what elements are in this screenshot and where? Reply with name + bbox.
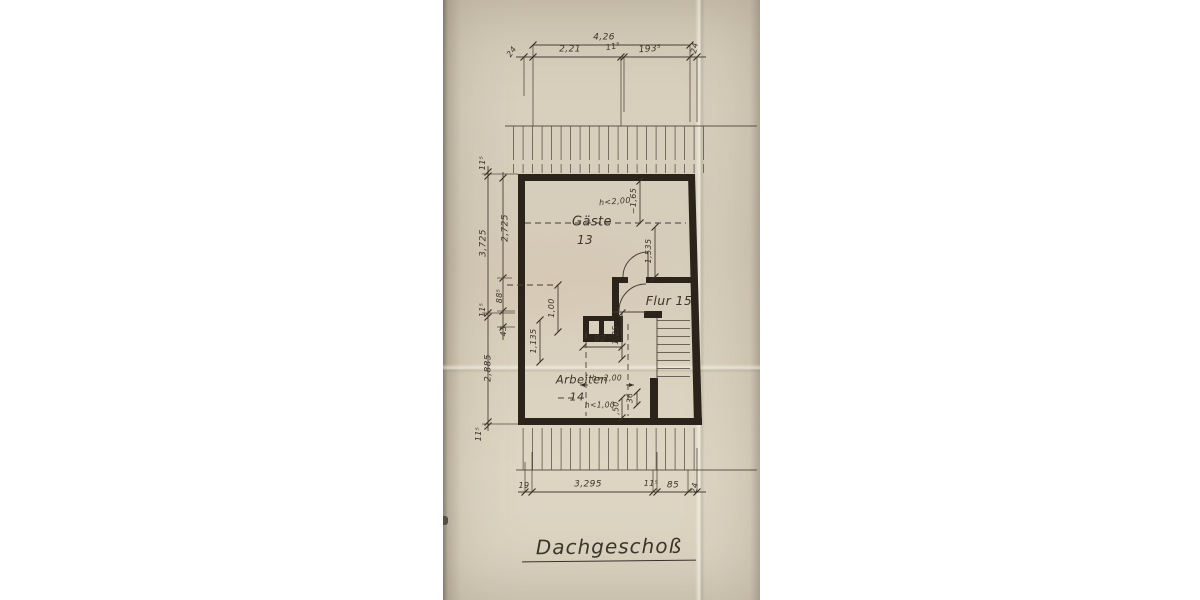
note-arbeiten-h200: h=2,00 [592,374,622,382]
dim-92: 92 [594,336,606,345]
dim-left-outer-4: 11⁵ [475,427,483,442]
dim-1135: 1,135 [530,329,538,354]
sheet-title: Dachgeschoß [522,536,697,563]
dim-left-inner-1: 88⁵ [496,289,504,304]
room-number-gaeste: 13 [577,234,593,246]
dim-top-seg3: 193⁵ [639,45,662,56]
dim-bottom-1: 3,295 [574,481,602,490]
dim-top-right-wall: 24 [690,42,700,54]
dim-left-outer-2: 11⁵ [479,303,487,318]
note-gaeste-height: h<2,00 [599,197,632,208]
plan-labels: 4,26 24 2,21 11⁵ 193⁵ 24 11⁵ 3,725 11⁵ 2… [0,0,1200,600]
room-label-gaeste: Gäste [572,216,612,229]
dim-left-outer-1: 3,725 [480,229,489,257]
dim-top-seg1: 2,21 [559,46,581,55]
dim-125: 1,25 [612,325,620,344]
dim-50: ,50 [612,401,620,414]
dim-bottom-0: 19 [519,482,530,490]
dim-bottom-2: 11⁵ [644,480,659,488]
dim-top-left-wall: 24 [506,45,519,59]
scanned-floor-plan-photo: 4,26 24 2,21 11⁵ 193⁵ 24 11⁵ 3,725 11⁵ 2… [0,0,1200,600]
room-label-flur: Flur 15 [646,295,692,308]
room-number-arbeiten: 14 [570,392,585,403]
dim-100: 1,00 [548,298,556,317]
dim-top-seg2: 11⁵ [605,42,621,52]
dim-165: ~1,65 [630,188,638,215]
dim-bottom-3: 85 [667,482,679,491]
dim-36: 36 [626,393,634,403]
dim-1535: 1,535 [645,239,653,264]
dim-bottom-4: 24 [690,482,700,494]
dim-left-outer-3: 2,885 [485,354,494,382]
dim-left-inner-0: 2,725 [502,214,511,242]
dim-left-inner-2: 43 [500,326,508,337]
dim-left-outer-0: 11⁵ [479,156,487,171]
